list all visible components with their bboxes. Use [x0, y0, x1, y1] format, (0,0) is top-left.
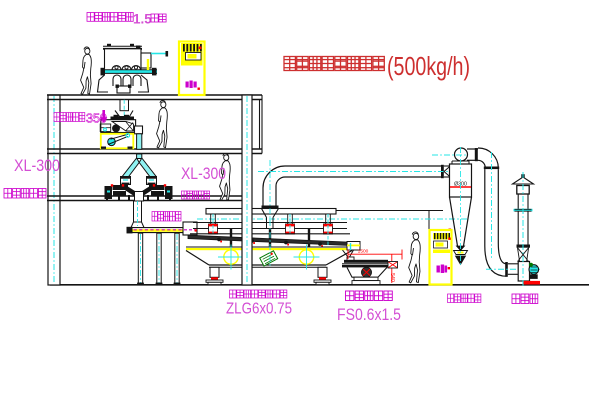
svg-text:FS0.6x1.5: FS0.6x1.5 — [337, 305, 401, 324]
svg-text:XL-300: XL-300 — [14, 157, 60, 175]
svg-text:1500: 1500 — [358, 249, 369, 255]
svg-text:ZLG6x0.75: ZLG6x0.75 — [226, 301, 292, 318]
svg-text:(500kg/h): (500kg/h) — [387, 51, 470, 81]
svg-text:1.5: 1.5 — [133, 12, 152, 27]
svg-text:XL-300: XL-300 — [181, 165, 226, 183]
svg-text:350: 350 — [86, 112, 107, 126]
